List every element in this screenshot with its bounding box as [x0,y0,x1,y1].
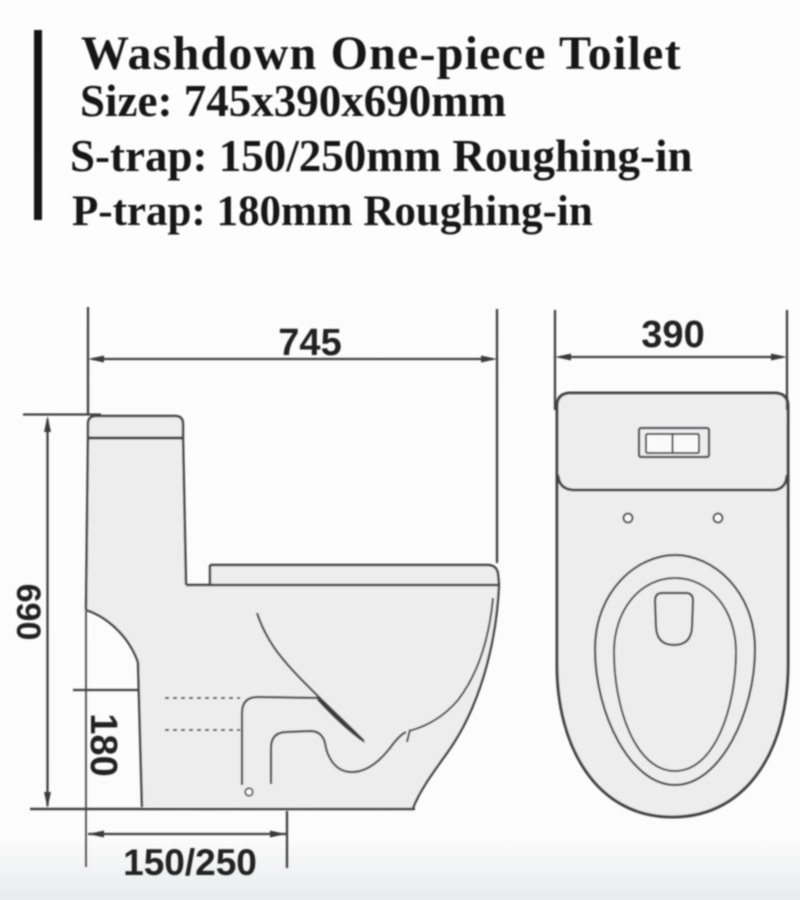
svg-text:150/250: 150/250 [123,842,257,883]
svg-text:Washdown One-piece Toilet: Washdown One-piece Toilet [81,27,682,80]
svg-text:690: 690 [9,584,47,641]
svg-text:180: 180 [82,713,124,776]
svg-text:P-trap: 180mm Roughing-in: P-trap: 180mm Roughing-in [72,188,593,235]
svg-text:S-trap: 150/250mm Roughing-in: S-trap: 150/250mm Roughing-in [70,131,693,181]
svg-text:745: 745 [278,322,341,364]
svg-text:390: 390 [641,314,704,356]
svg-text:Size: 745x390x690mm: Size: 745x390x690mm [80,76,506,126]
